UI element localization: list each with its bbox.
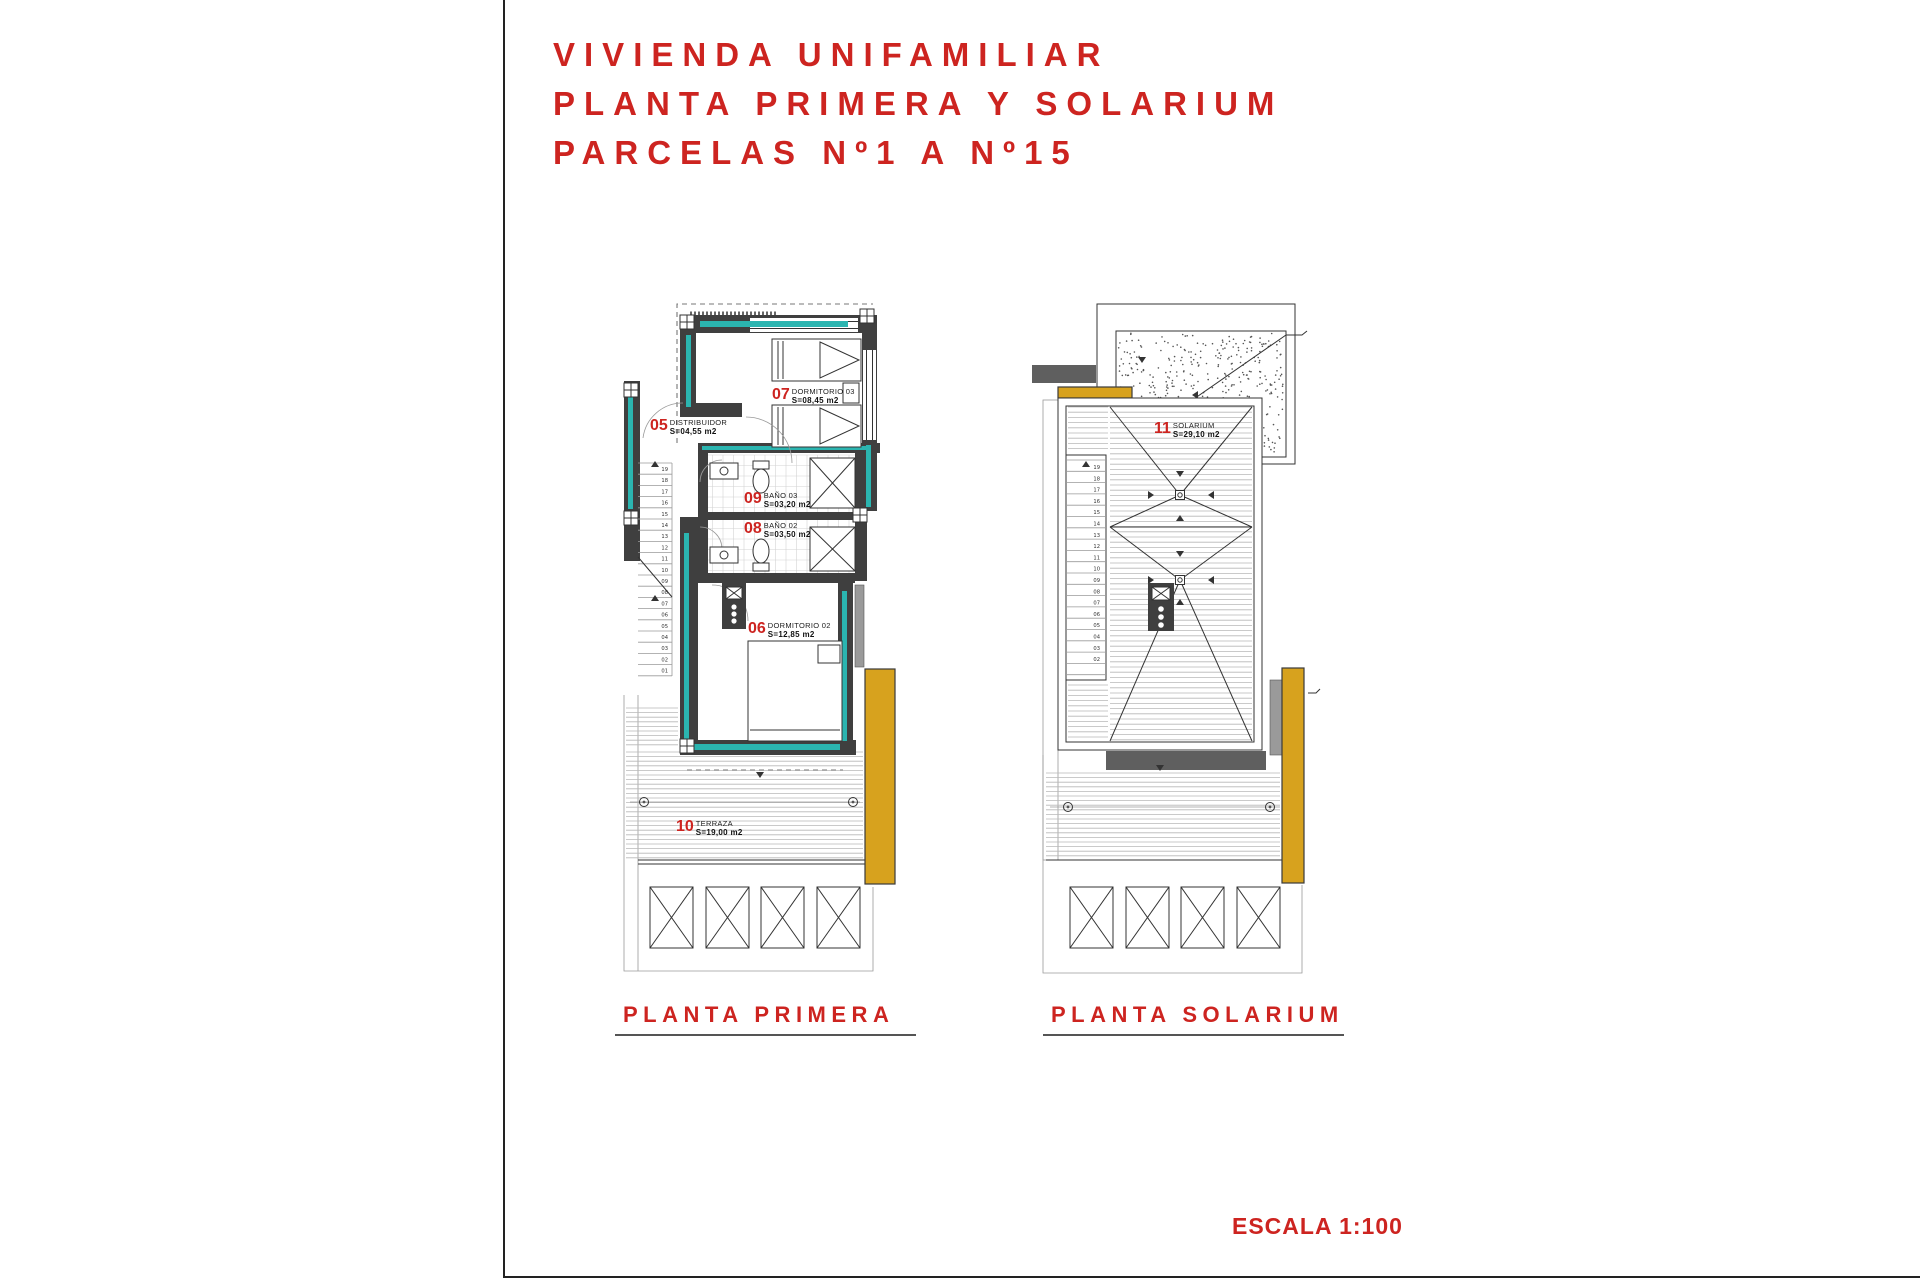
room-number: 07: [772, 388, 790, 401]
skylight-box: [650, 887, 693, 948]
scale-label: ESCALA 1:100: [1232, 1213, 1403, 1240]
svg-text:03: 03: [661, 646, 668, 652]
svg-text:18: 18: [1093, 476, 1100, 482]
svg-text:14: 14: [661, 523, 668, 529]
room-area: S=08,45 m2: [792, 396, 855, 405]
svg-text:07: 07: [661, 601, 668, 607]
room-name: DISTRIBUIDOR: [670, 419, 727, 427]
room-area: S=12,85 m2: [768, 630, 831, 639]
roof-drain: [1176, 576, 1185, 585]
solarium-body: 191817161514131211100908070605040302: [1058, 398, 1262, 750]
svg-text:11: 11: [1093, 555, 1100, 561]
plan-planta-primera: 19181716151413121110090807060504030201: [610, 295, 910, 990]
svg-text:05: 05: [661, 624, 668, 630]
room-number: 05: [650, 419, 668, 432]
svg-text:02: 02: [661, 657, 668, 663]
svg-text:11: 11: [661, 557, 668, 563]
room-area: S=19,00 m2: [696, 828, 743, 837]
toilet-tank: [753, 461, 769, 469]
staircase: 191817161514131211100908070605040302: [1066, 455, 1106, 680]
room-area: S=03,50 m2: [764, 530, 811, 539]
room-number: 06: [748, 622, 766, 635]
svg-text:17: 17: [1093, 488, 1100, 494]
pergola-bar: [1282, 668, 1304, 883]
title-line-1: VIVIENDA UNIFAMILIAR: [553, 30, 1283, 79]
room-area: S=29,10 m2: [1173, 430, 1220, 439]
skylight-box: [817, 887, 860, 948]
svg-text:09: 09: [1093, 578, 1100, 584]
plan-planta-solarium: 191817161514131211100908070605040302: [1030, 295, 1350, 990]
svg-text:10: 10: [661, 568, 668, 574]
svg-text:04: 04: [1093, 635, 1100, 641]
room-area: S=04,55 m2: [670, 427, 727, 436]
deck-boards-terrace: [626, 752, 863, 858]
svg-text:15: 15: [1093, 510, 1100, 516]
caption-planta-primera: PLANTA PRIMERA: [615, 1002, 916, 1036]
svg-text:04: 04: [661, 635, 668, 641]
skylight-box: [761, 887, 804, 948]
svg-text:15: 15: [661, 512, 668, 518]
skylight-box: [1070, 887, 1113, 948]
room-name: BAÑO 02: [764, 522, 811, 530]
balcony-strip: [855, 585, 864, 667]
svg-text:13: 13: [1093, 533, 1100, 539]
staircase: 19181716151413121110090807060504030201: [638, 461, 672, 676]
chimney-vent: [1148, 583, 1174, 631]
skylight-box: [1181, 887, 1224, 948]
room-area: S=03,20 m2: [764, 500, 811, 509]
room-number: 11: [1154, 422, 1171, 435]
room-name: DORMITORIO 02: [768, 622, 831, 630]
room-number: 10: [676, 820, 694, 833]
svg-text:08: 08: [1093, 589, 1100, 595]
title-line-3: PARCELAS Nº1 A Nº15: [553, 128, 1283, 177]
pergola-bar-top: [1058, 387, 1132, 398]
svg-text:05: 05: [1093, 623, 1100, 629]
svg-text:14: 14: [1093, 522, 1100, 528]
skylight-box: [706, 887, 749, 948]
svg-text:18: 18: [661, 478, 668, 484]
deck-boards-terrace: [1046, 773, 1280, 856]
svg-text:10: 10: [1093, 567, 1100, 573]
skylight-row: [650, 887, 860, 948]
room-number: 09: [744, 492, 762, 505]
svg-text:09: 09: [661, 579, 668, 585]
pergola-bar: [865, 669, 895, 884]
planter-bar: [1106, 751, 1266, 770]
svg-text:08: 08: [661, 590, 668, 596]
room-number: 08: [744, 522, 762, 535]
stair-arrow-icon: [651, 461, 659, 467]
skylight-row: [1070, 887, 1280, 948]
balcony-strip: [1270, 680, 1282, 755]
room-name: TERRAZA: [696, 820, 743, 828]
roof-drain: [1176, 491, 1185, 500]
sheet-border-horizontal: [503, 1276, 1920, 1278]
room-label-solarium: 11 SOLARIUM S=29,10 m2: [1154, 422, 1220, 439]
room-label-bano-02: 08 BAÑO 02 S=03,50 m2: [744, 522, 811, 539]
chimney-vent: [722, 583, 746, 629]
sink: [710, 547, 738, 563]
stair-arrow-icon: [651, 595, 659, 601]
drawing-sheet: VIVIENDA UNIFAMILIAR PLANTA PRIMERA Y SO…: [0, 0, 1920, 1280]
svg-text:02: 02: [1093, 657, 1100, 663]
toilet: [753, 539, 769, 563]
bed: [748, 641, 842, 741]
drawing-title: VIVIENDA UNIFAMILIAR PLANTA PRIMERA Y SO…: [553, 30, 1283, 177]
svg-text:19: 19: [1093, 465, 1100, 471]
svg-text:16: 16: [661, 501, 668, 507]
svg-text:06: 06: [661, 613, 668, 619]
svg-text:06: 06: [1093, 612, 1100, 618]
skylight-box: [1237, 887, 1280, 948]
deck-boards-left: [626, 708, 678, 745]
svg-text:16: 16: [1093, 499, 1100, 505]
svg-text:07: 07: [1093, 601, 1100, 607]
caption-planta-solarium: PLANTA SOLARIUM: [1043, 1002, 1344, 1036]
title-line-2: PLANTA PRIMERA Y SOLARIUM: [553, 79, 1283, 128]
room-name: BAÑO 03: [764, 492, 811, 500]
svg-text:12: 12: [1093, 544, 1100, 550]
stair-numbers: 19181716151413121110090807060504030201: [661, 467, 668, 675]
room-label-dormitorio-02: 06 DORMITORIO 02 S=12,85 m2: [748, 622, 831, 639]
side-marker: [1308, 689, 1320, 693]
toilet-tank: [753, 563, 769, 571]
room-label-distribuidor: 05 DISTRIBUIDOR S=04,55 m2: [650, 419, 727, 436]
sink: [710, 463, 738, 479]
room-label-dormitorio-03: 07 DORMITORIO 03 S=08,45 m2: [772, 388, 855, 405]
svg-text:13: 13: [661, 534, 668, 540]
room-name: DORMITORIO 03: [792, 388, 855, 396]
svg-text:03: 03: [1093, 646, 1100, 652]
room-label-terraza: 10 TERRAZA S=19,00 m2: [676, 820, 743, 837]
parapet-block: [1032, 365, 1096, 383]
skylight-box: [1126, 887, 1169, 948]
svg-text:17: 17: [661, 489, 668, 495]
sheet-border-vertical: [503, 0, 505, 1278]
room-name: SOLARIUM: [1173, 422, 1220, 430]
svg-text:12: 12: [661, 545, 668, 551]
svg-text:01: 01: [661, 669, 668, 675]
svg-text:19: 19: [661, 467, 668, 473]
room-label-bano-03: 09 BAÑO 03 S=03,20 m2: [744, 492, 811, 509]
